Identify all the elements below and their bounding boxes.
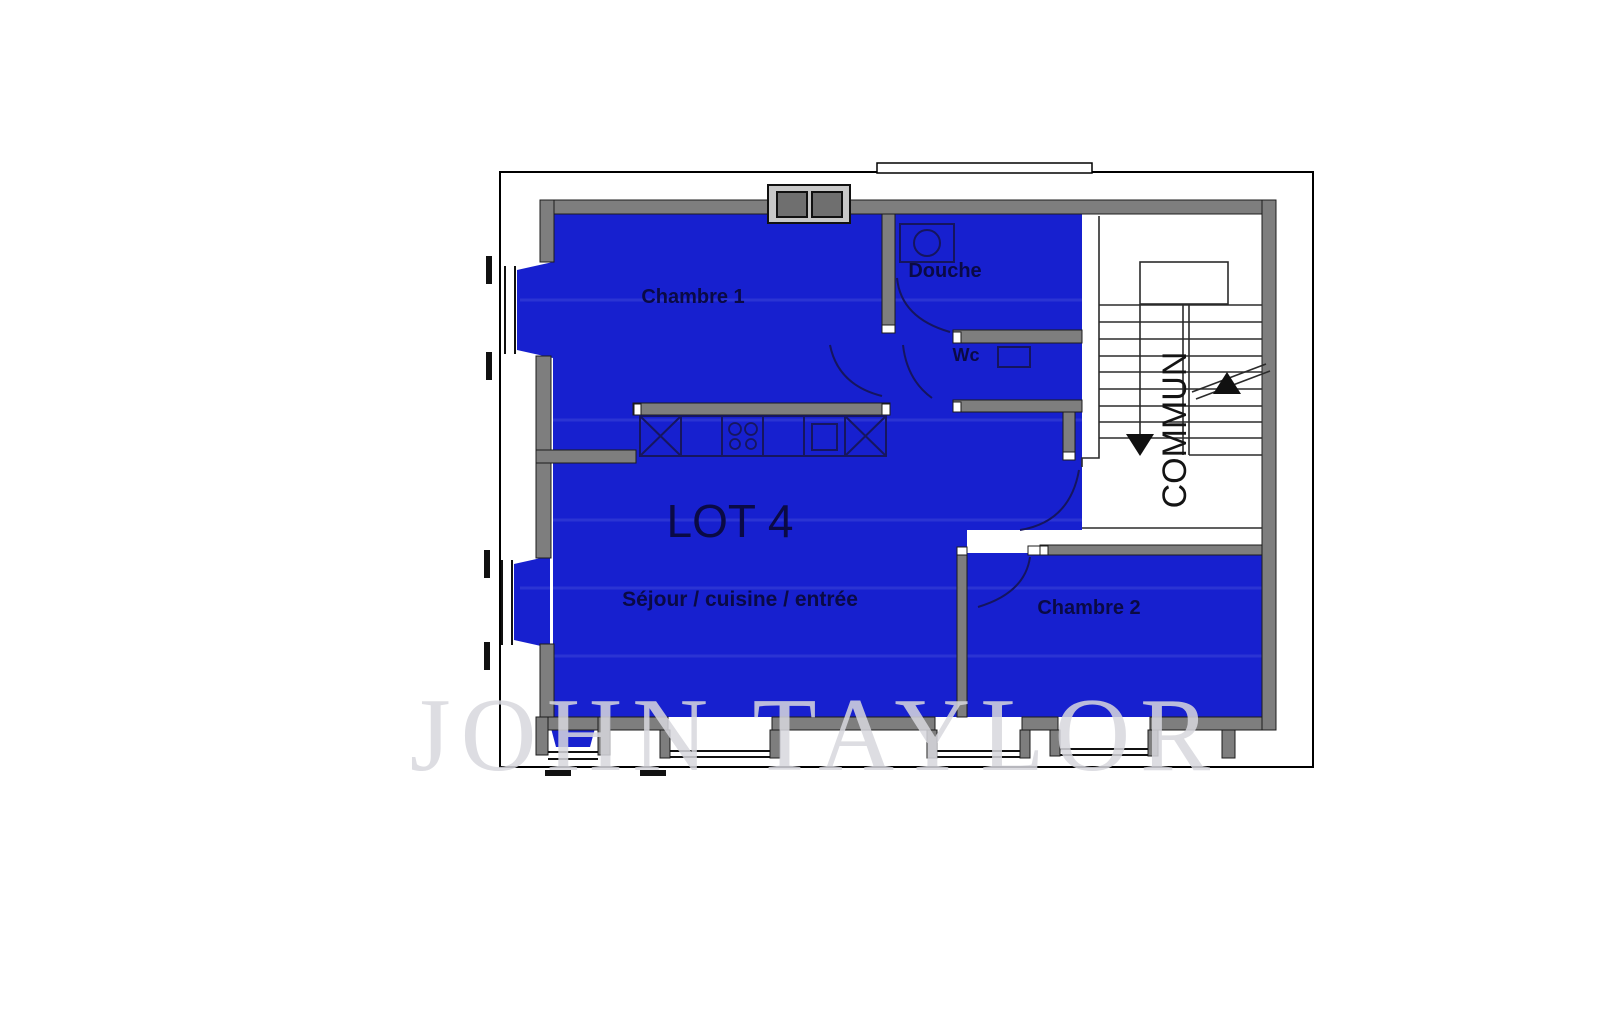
label-lot4: LOT 4 bbox=[667, 495, 794, 547]
wall-left-upper bbox=[540, 200, 554, 262]
label-wc: Wc bbox=[953, 345, 980, 365]
wall-wc-top bbox=[953, 330, 1082, 343]
wall-se-notch bbox=[1222, 730, 1235, 758]
wall-chambre1-bottom bbox=[536, 450, 636, 463]
label-douche: Douche bbox=[908, 260, 981, 282]
wall-chambre2-top bbox=[1040, 545, 1262, 555]
chimney-icon bbox=[768, 185, 850, 223]
window-splay-left-2 bbox=[514, 556, 550, 648]
label-commun: COMMUN bbox=[1156, 352, 1194, 509]
watermark-john-taylor: JOHN TAYLOR bbox=[410, 676, 1220, 793]
label-sejour: Séjour / cuisine / entrée bbox=[622, 588, 858, 611]
wall-top bbox=[540, 200, 1276, 214]
wall-wc-bottom bbox=[953, 400, 1082, 412]
wall-kitchen-counter-top bbox=[633, 403, 890, 415]
label-chambre2: Chambre 2 bbox=[1037, 597, 1140, 619]
floor-plan-drawing: Chambre 1 Douche Wc LOT 4 Séjour / cuisi… bbox=[0, 0, 1600, 1023]
label-chambre1: Chambre 1 bbox=[641, 286, 744, 308]
boundary-top-bump bbox=[877, 163, 1092, 173]
wall-right bbox=[1262, 200, 1276, 730]
floor-plan-page: Chambre 1 Douche Wc LOT 4 Séjour / cuisi… bbox=[0, 0, 1600, 1023]
window-splay-left-1 bbox=[517, 262, 553, 358]
wall-chambre1-douche-divider bbox=[882, 214, 895, 333]
